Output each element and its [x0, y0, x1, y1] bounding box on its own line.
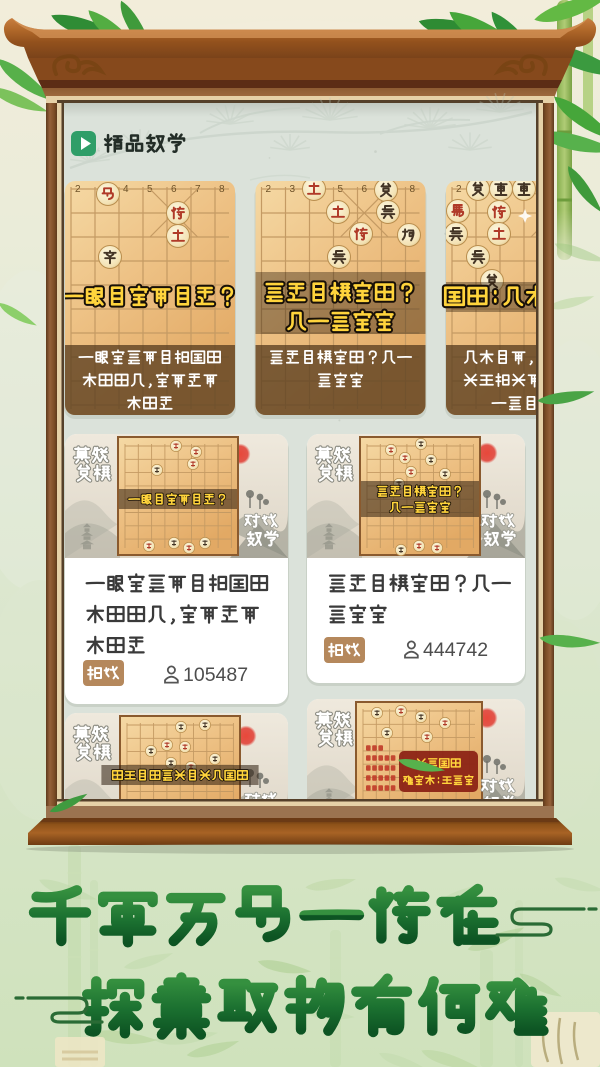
svg-text:2: 2 — [75, 184, 81, 195]
svg-text:6: 6 — [171, 184, 177, 195]
svg-text:3: 3 — [290, 184, 296, 195]
svg-text:4: 4 — [123, 184, 129, 195]
svg-text:6: 6 — [362, 184, 368, 195]
svg-text:2: 2 — [456, 184, 462, 195]
svg-text:105487: 105487 — [183, 664, 248, 686]
svg-text:444742: 444742 — [423, 639, 488, 661]
svg-text:2: 2 — [266, 184, 272, 195]
svg-text:8: 8 — [219, 184, 225, 195]
svg-text:8: 8 — [410, 184, 416, 195]
svg-text:7: 7 — [195, 184, 201, 195]
